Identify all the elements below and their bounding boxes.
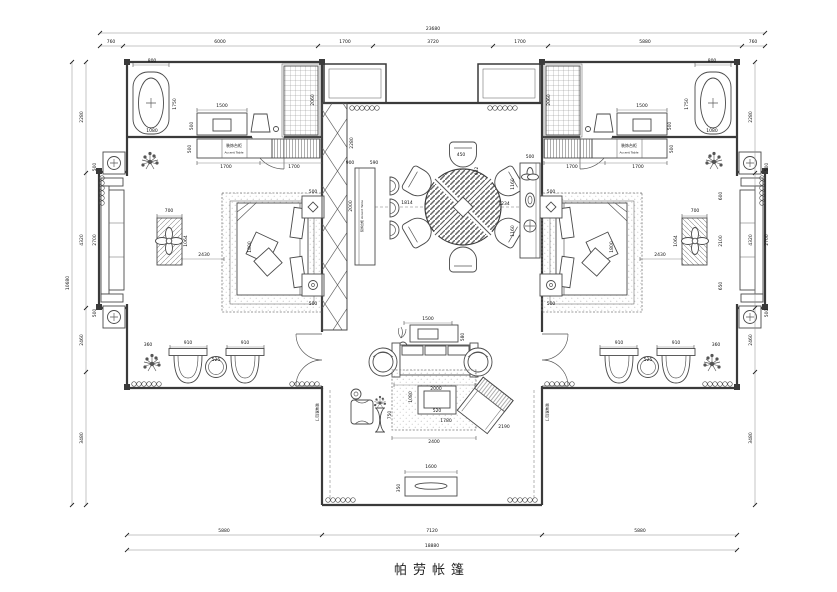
dimension-label: 2460 [748,334,754,346]
dimension-label: 910 [241,340,250,346]
dimension-label: 1750 [172,98,178,110]
dimension-label: 1750 [684,98,690,110]
dimension-label: 5880 [639,39,651,45]
dimension-label: 910 [184,340,193,346]
accent-table-label-cn: 装饰台柜 [621,142,637,148]
door-label: 玻璃推拉门 [545,403,550,421]
dimension-label: 500 [92,163,98,172]
dimension-label: 5880 [634,528,646,534]
dimension-label: 1700 [514,39,526,45]
drawing-title: 帕劳帐篷 [394,562,470,578]
dimension-label: 760 [107,39,116,45]
dimension-label: 1500 [636,103,648,109]
dimension-label: 800 [148,58,157,64]
dimension-label: 3720 [427,39,439,45]
dimension-label: 2700 [92,234,98,246]
dimension-label: 4320 [79,234,85,246]
dimension-label: 350 [396,484,402,493]
door-label: 玻璃推拉门 [315,403,320,421]
dimension-label: 500 [309,301,318,307]
hall-console [355,168,375,265]
dimension-label: 450 [457,152,466,158]
lattice-screen [322,103,347,330]
floor-plan-canvas: 2368076060001700372017005880760106802280… [0,0,837,592]
dimension-label: 2280 [748,111,754,123]
dimension-label: 7120 [426,528,438,534]
right-wing [539,59,769,390]
dimension-label: 4320 [748,234,754,246]
dimension-label: 1700 [566,164,578,170]
dimension-label: 1160 [510,178,516,190]
dimension-label: 800 [708,58,717,64]
dimension-label: 5880 [218,528,230,534]
dimension-label: 2000 [348,200,354,212]
dimension-label: 1160 [510,225,516,237]
dimension-label: 2280 [79,111,85,123]
dimension-label: 2280 [349,137,355,149]
dimension-label: 650 [718,282,724,291]
dimension-label: 1064 [673,235,679,247]
dimension-label: 2060 [310,94,316,106]
dimension-label: 360 [712,342,721,348]
window-box [478,64,540,103]
dimension-label: 1080 [146,128,158,134]
dimension-label: 500 [92,309,98,318]
dimension-label: 1700 [220,164,232,170]
dimension-label: 1080 [706,128,718,134]
dimension-label: 910 [672,340,681,346]
dimension-label: 520 [433,408,442,414]
annotation-layer: 2368076060001700372017005880760106802280… [65,26,770,549]
dimension-label: 1800 [609,241,615,253]
dimension-label: 700 [691,208,700,214]
floor-plan-sheet: 2368076060001700372017005880760106802280… [0,0,837,592]
dimension-label: 1700 [288,164,300,170]
dimension-label: 750 [387,411,393,420]
dimension-label: 500 [547,301,556,307]
dimension-label: 2400 [428,439,440,445]
accent-table-label-en: Accent Table [620,151,639,155]
dimension-label: 1234 [498,201,510,207]
dimension-label: 3480 [79,432,85,444]
dimension-label: 500 [669,145,675,154]
dimension-label: 1780 [440,418,452,424]
dimension-label: 10680 [65,276,71,290]
dimension-label: 1700 [339,39,351,45]
dimension-label: 6000 [214,39,226,45]
dimension-label: 1700 [632,164,644,170]
dimension-label: 600 [718,192,724,201]
dimension-label: 2060 [546,94,552,106]
dimension-label: 580 [460,333,466,342]
dimension-label: 1814 [401,200,413,206]
dimension-label: 2100 [718,235,724,247]
dimension-label: 500 [189,122,195,131]
dimension-label: 1800 [247,241,253,253]
central-hall [322,64,542,505]
dimension-label: 2700 [764,234,770,246]
dimension-label: 525 [644,357,653,363]
dimension-label: 500 [187,145,193,154]
dimension-label: 2190 [498,424,510,430]
dimension-label: 3480 [748,432,754,444]
dimension-label: 2460 [79,334,85,346]
left-wing [96,59,326,390]
dimension-label: 500 [764,309,770,318]
dimension-label: 500 [667,122,673,131]
dimension-label: 1500 [422,316,434,322]
sofa-back-table [410,325,458,342]
accent-table-label-cn: 装饰台柜 [226,142,242,148]
dimension-label: 18880 [425,543,439,549]
hall-console-right [520,163,540,258]
dimension-label: 525 [212,357,221,363]
dimension-label: 500 [547,189,556,195]
dimension-label: 700 [165,208,174,214]
window-box [324,64,386,103]
dimension-label: 1600 [425,464,437,470]
dimension-label: 760 [749,39,758,45]
dimension-label: 900 [346,160,355,166]
dimension-label: 1500 [216,103,228,109]
hall-console-label: 装饰台柜 Accent Table [359,200,364,232]
dimension-label: 590 [370,160,379,166]
dimension-label: 910 [615,340,624,346]
small-armchair [351,400,373,424]
pedestal-vase [374,396,386,432]
dimension-label: 500 [309,189,318,195]
dimension-label: 2430 [654,252,666,258]
dimension-label: 23680 [426,26,440,32]
dimension-label: 932 [474,167,480,176]
dimension-label: 500 [764,163,770,172]
dimension-label: 360 [144,342,153,348]
dimension-label: 2430 [198,252,210,258]
accent-table-label-en: Accent Table [225,151,244,155]
dimension-label: 500 [526,154,535,160]
entry-console [405,477,457,496]
dimension-label: 2000 [430,386,442,392]
dimension-label: 1080 [408,391,414,403]
dimension-label: 1064 [183,235,189,247]
